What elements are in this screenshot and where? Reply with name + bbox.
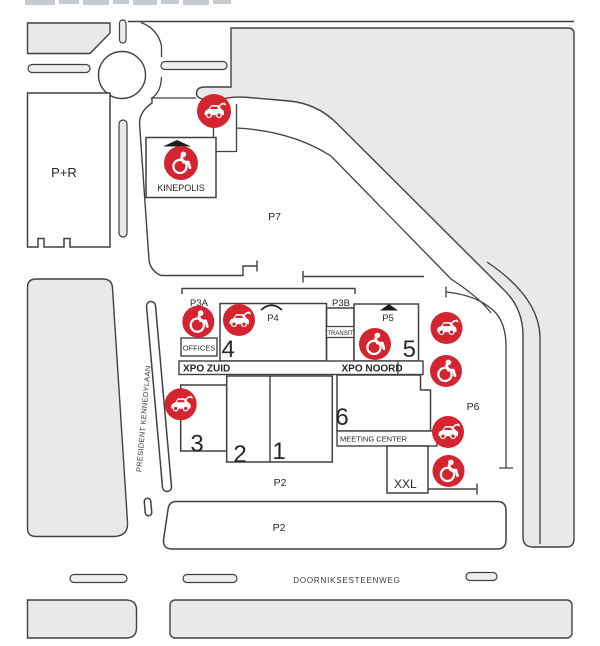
xxl-label: XXL <box>394 477 417 491</box>
hall-4-label: 4 <box>222 336 235 363</box>
wheelchair-icon <box>433 455 465 487</box>
doornik-median-3 <box>466 573 497 581</box>
meeting-center-label: MEETING CENTER <box>340 435 408 444</box>
site-map: P+R P7 P6 KINEPOLIS P3A P3B OFFICES P4 4… <box>0 0 600 646</box>
transit-label: TRANSIT <box>327 331 353 337</box>
doornik-median-2 <box>183 575 237 583</box>
xpo-zuid-label: XPO ZUID <box>183 364 230 375</box>
median-north <box>120 20 127 43</box>
ev-charging-icon <box>431 312 463 344</box>
p7-label: P7 <box>268 211 281 223</box>
doorniksesteenweg-street-label: DOORNIKSESTEENWEG <box>293 576 400 585</box>
kennedylaan-oval <box>148 502 149 513</box>
dropoff-road-edge <box>152 77 196 98</box>
hall-3-label: 3 <box>190 431 203 458</box>
p4-label: P4 <box>267 313 279 324</box>
hall-5-label: 5 <box>403 336 416 363</box>
p2-strip <box>163 502 506 550</box>
offices-label: OFFICES <box>183 344 216 353</box>
median-south <box>119 120 127 237</box>
p2-inner-label: P2 <box>274 477 287 489</box>
median-east <box>161 62 227 70</box>
hall-2-label: 2 <box>233 441 246 468</box>
p7-boundary-east <box>303 271 424 283</box>
hall-6-label: 6 <box>335 404 348 431</box>
p2-strip-label: P2 <box>273 522 286 534</box>
pr-label: P+R <box>51 165 77 180</box>
p3-bracket <box>182 289 355 295</box>
wheelchair-icon <box>182 306 214 338</box>
clipped-title-fragment <box>25 0 231 5</box>
ev-charging-icon <box>223 304 255 336</box>
hall-1-label: 1 <box>272 438 285 465</box>
bottom-right-block <box>170 600 572 638</box>
hall-6-building <box>337 375 431 431</box>
p5-label: P5 <box>382 313 394 324</box>
kinepolis-label: KINEPOLIS <box>157 183 205 193</box>
kennedylaan-island <box>151 306 167 487</box>
median-west <box>28 65 90 73</box>
bottom-left-block <box>28 600 137 638</box>
xpo-noord-label: XPO NOORD <box>342 364 403 375</box>
roundabout <box>99 52 146 99</box>
ev-charging-icon <box>165 388 197 420</box>
ev-charging-icon <box>432 416 464 448</box>
road-corner-north <box>141 23 162 58</box>
doornik-median-1 <box>70 575 127 583</box>
kennedylaan-west-block <box>28 279 128 537</box>
p6-label: P6 <box>467 401 480 413</box>
wheelchair-icon <box>430 355 462 387</box>
top-left-block <box>28 23 111 54</box>
ev-charging-icon <box>197 94 231 128</box>
wheelchair-icon <box>164 146 198 180</box>
wheelchair-icon <box>359 328 391 360</box>
kennedylaan-street-label: PRESIDENT KENNEDYLAAN <box>134 365 152 472</box>
